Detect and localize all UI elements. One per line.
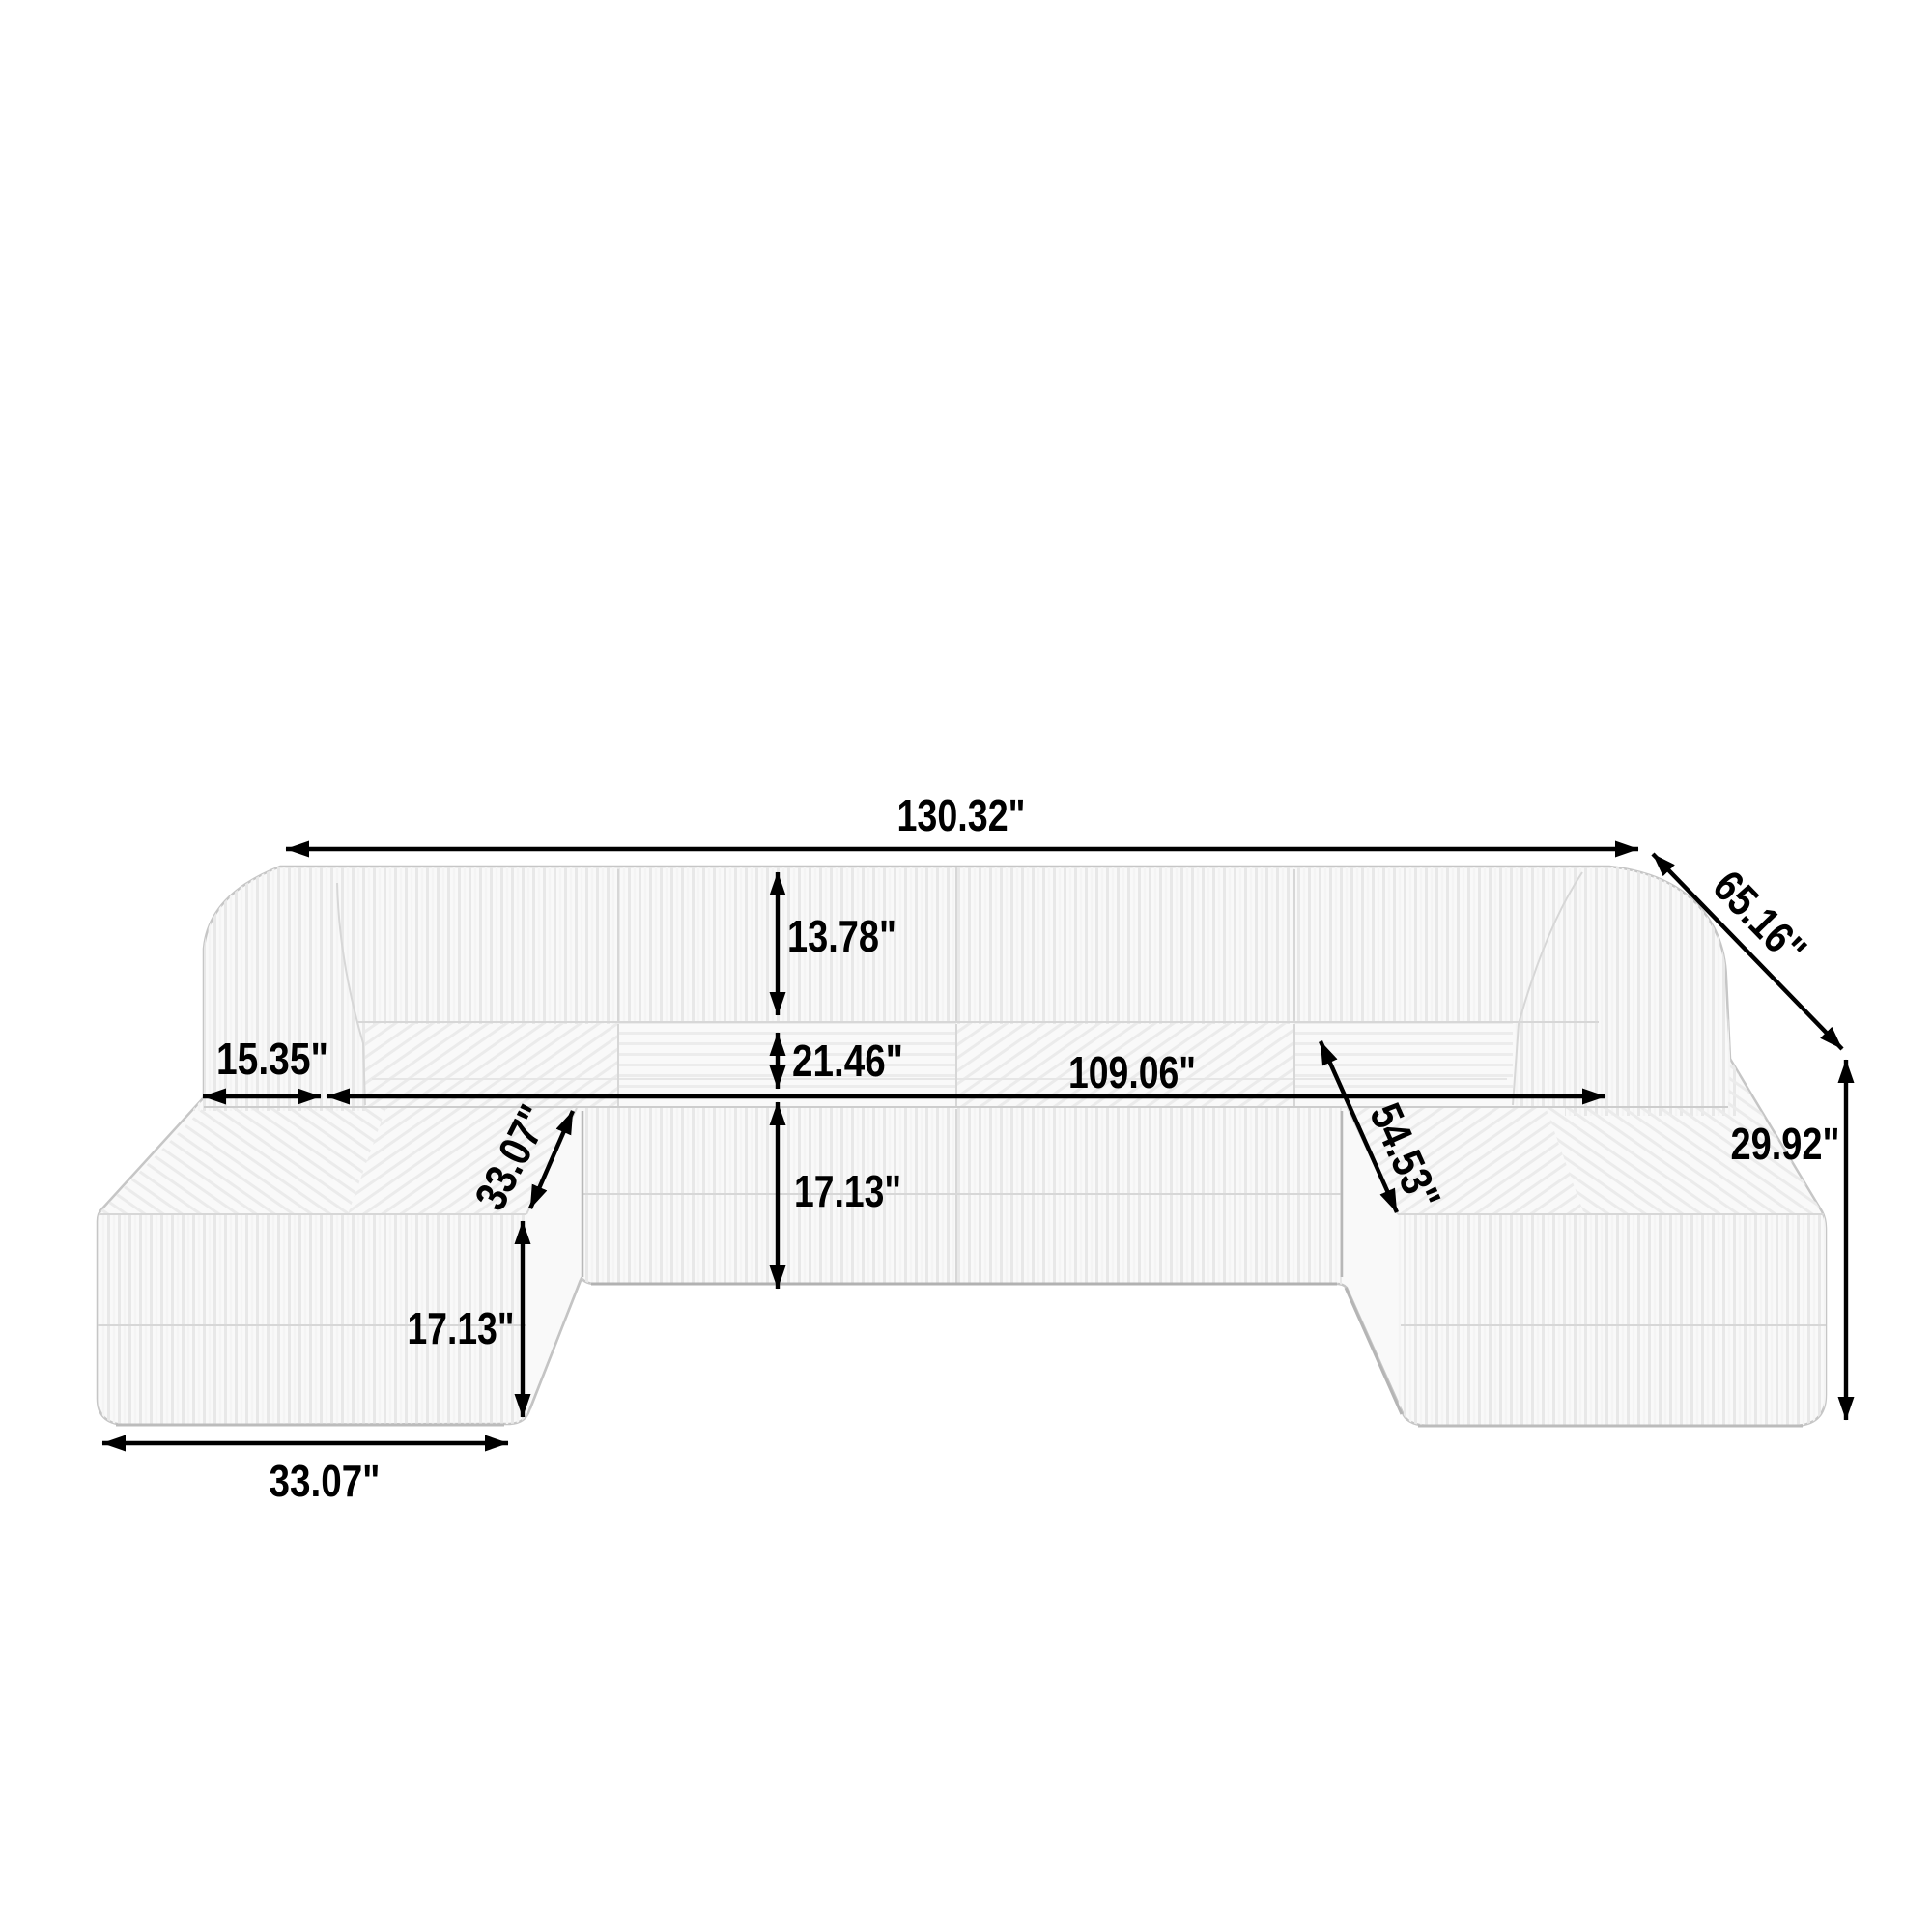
svg-text:17.13": 17.13" <box>408 1303 515 1353</box>
svg-text:15.35": 15.35" <box>216 1034 328 1084</box>
svg-text:13.78": 13.78" <box>787 911 896 961</box>
svg-text:33.07": 33.07" <box>270 1456 381 1506</box>
svg-text:17.13": 17.13" <box>794 1166 901 1216</box>
svg-text:29.92": 29.92" <box>1731 1119 1840 1169</box>
svg-text:109.06": 109.06" <box>1068 1047 1196 1097</box>
svg-text:130.32": 130.32" <box>897 790 1026 840</box>
svg-text:21.46": 21.46" <box>792 1036 903 1086</box>
